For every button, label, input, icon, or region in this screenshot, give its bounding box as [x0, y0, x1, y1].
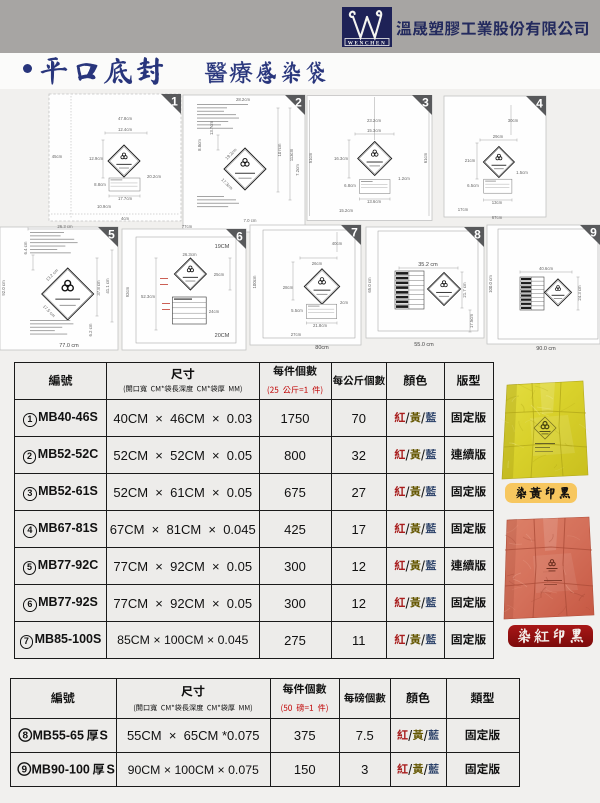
svg-text:107cm: 107cm	[277, 143, 282, 156]
svg-text:100cm: 100cm	[252, 275, 257, 288]
svg-text:24cm: 24cm	[209, 309, 220, 314]
svg-text:12.4cm: 12.4cm	[118, 127, 133, 132]
svg-text:92cm: 92cm	[125, 286, 130, 297]
svg-text:7.2cm: 7.2cm	[295, 164, 300, 176]
svg-text:55.0 cm: 55.0 cm	[414, 342, 434, 348]
svg-text:77cm: 77cm	[182, 224, 193, 229]
svg-text:8.8cm: 8.8cm	[94, 182, 106, 187]
svg-text:26cm: 26cm	[312, 261, 323, 266]
svg-text:6.4 cm: 6.4 cm	[23, 241, 28, 254]
svg-text:5: 5	[108, 228, 115, 242]
svg-text:1: 1	[171, 95, 178, 109]
svg-text:37.8 cm: 37.8 cm	[96, 280, 101, 296]
svg-text:23.2cm: 23.2cm	[367, 118, 382, 123]
svg-text:6.2 cm: 6.2 cm	[88, 323, 93, 336]
svg-text:51cm: 51cm	[308, 152, 313, 163]
svg-text:13.7cm: 13.7cm	[209, 121, 214, 136]
svg-text:13cm: 13cm	[492, 200, 503, 205]
svg-text:19CM: 19CM	[215, 244, 230, 250]
svg-text:26.3 cm: 26.3 cm	[57, 224, 73, 229]
svg-text:9: 9	[590, 226, 597, 240]
svg-text:17.7cm: 17.7cm	[118, 196, 133, 201]
svg-text:17cm: 17cm	[458, 207, 469, 212]
svg-text:27cm: 27cm	[291, 332, 302, 337]
svg-text:21.8cm: 21.8cm	[313, 323, 328, 328]
svg-text:52.3cm: 52.3cm	[141, 294, 156, 299]
svg-text:113cm: 113cm	[289, 148, 294, 161]
svg-text:29cm: 29cm	[493, 134, 504, 139]
svg-text:5.5cm: 5.5cm	[291, 308, 303, 313]
svg-text:47.8cm: 47.8cm	[118, 116, 133, 121]
svg-text:7: 7	[351, 226, 358, 240]
svg-text:26.3cm: 26.3cm	[182, 252, 197, 257]
svg-text:4: 4	[536, 97, 543, 111]
svg-text:40cm: 40cm	[332, 241, 343, 246]
svg-text:3: 3	[422, 96, 429, 110]
svg-text:24.3 cm: 24.3 cm	[577, 285, 582, 301]
svg-text:7.0 cm: 7.0 cm	[244, 218, 257, 223]
svg-text:4cm: 4cm	[121, 216, 130, 221]
svg-text:30cm: 30cm	[508, 118, 519, 123]
svg-text:2cm: 2cm	[340, 300, 349, 305]
svg-text:8.8cm: 8.8cm	[197, 139, 202, 151]
svg-text:15.3cm: 15.3cm	[367, 128, 382, 133]
svg-text:40.6cm: 40.6cm	[539, 266, 554, 271]
svg-text:6.5cm: 6.5cm	[467, 183, 479, 188]
svg-text:41.1 cm: 41.1 cm	[105, 278, 110, 294]
svg-text:21cm: 21cm	[465, 158, 476, 163]
svg-text:28.2cm: 28.2cm	[236, 97, 251, 102]
svg-text:92.0 cm: 92.0 cm	[1, 280, 6, 296]
svg-text:77.0 cm: 77.0 cm	[59, 343, 79, 349]
svg-text:1.5cm: 1.5cm	[516, 170, 528, 175]
svg-text:12.9cm: 12.9cm	[89, 156, 104, 161]
svg-text:13.6cm: 13.6cm	[367, 199, 382, 204]
svg-text:25cm: 25cm	[214, 272, 225, 277]
svg-text:100.0 cm: 100.0 cm	[488, 275, 493, 293]
svg-text:20CM: 20CM	[215, 333, 230, 339]
svg-text:45cm: 45cm	[52, 154, 63, 159]
svg-text:6: 6	[236, 230, 243, 244]
svg-text:2: 2	[295, 96, 302, 110]
svg-text:21.7 cm: 21.7 cm	[462, 282, 467, 298]
svg-text:28cm: 28cm	[283, 285, 294, 290]
svg-text:15.2cm: 15.2cm	[339, 208, 354, 213]
svg-text:65.0 cm: 65.0 cm	[367, 277, 372, 293]
svg-text:WENCHEN: WENCHEN	[348, 40, 387, 46]
svg-text:10.9cm: 10.9cm	[97, 204, 112, 209]
svg-text:6.8cm: 6.8cm	[344, 183, 356, 188]
svg-text:35.2 cm: 35.2 cm	[418, 262, 438, 268]
svg-text:17.5cm: 17.5cm	[469, 314, 474, 329]
svg-text:20.2cm: 20.2cm	[147, 174, 162, 179]
svg-text:16.3cm: 16.3cm	[334, 156, 349, 161]
svg-text:80cm: 80cm	[315, 345, 329, 351]
svg-text:1.2cm: 1.2cm	[398, 176, 410, 181]
svg-text:67cm: 67cm	[492, 215, 503, 220]
svg-text:90.0 cm: 90.0 cm	[536, 346, 556, 352]
svg-text:8: 8	[474, 228, 481, 242]
svg-text:61cm: 61cm	[423, 152, 428, 163]
